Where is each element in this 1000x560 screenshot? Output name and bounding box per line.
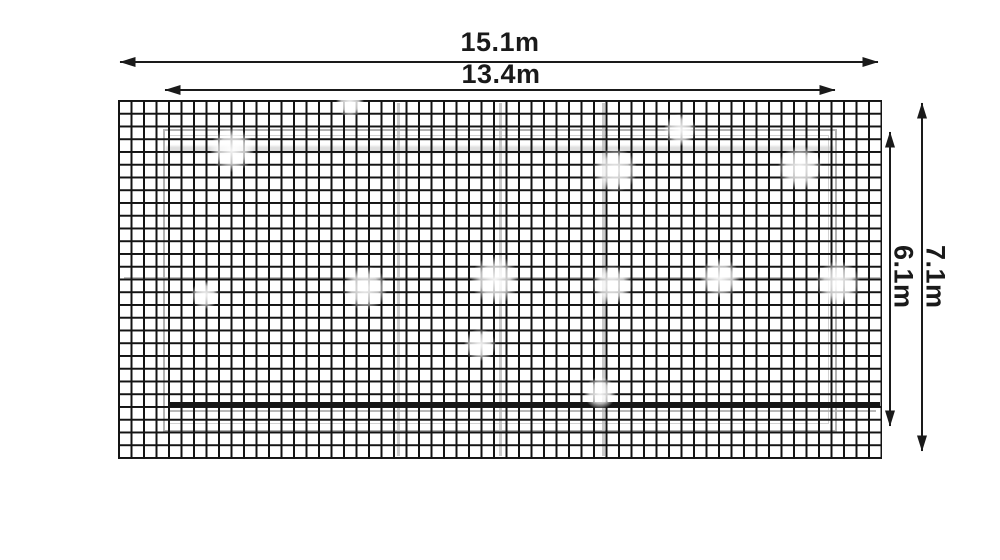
outer-height-label: 7.1m [920,217,950,337]
inner-width-label: 13.4m [401,61,601,88]
inner-height-label: 6.1m [888,217,918,337]
outer-width-label: 15.1m [400,29,600,56]
diagram-canvas: 15.1m 13.4m 7.1m 6.1m [0,0,1000,560]
